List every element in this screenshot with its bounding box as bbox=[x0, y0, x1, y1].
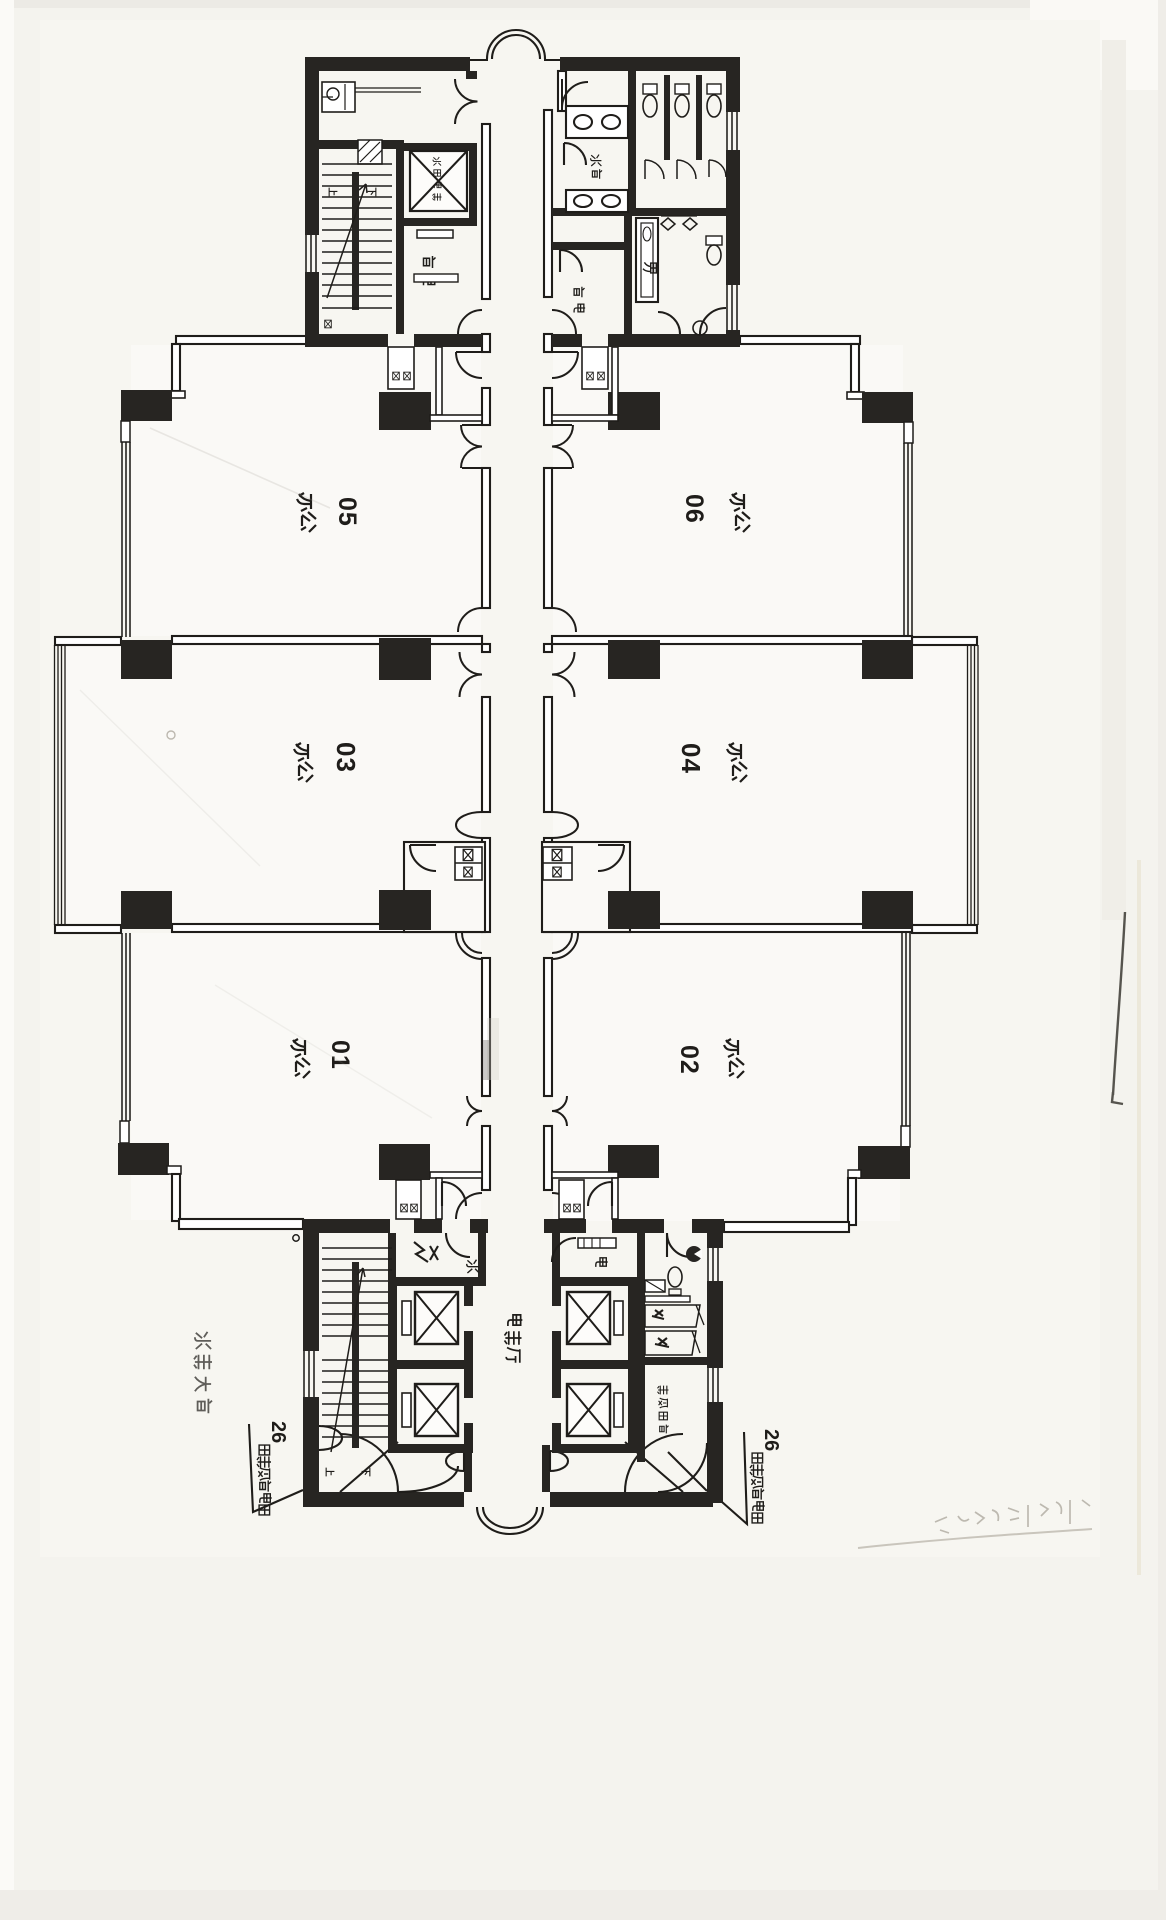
svg-text:26: 26 bbox=[267, 1421, 289, 1443]
svg-text:02: 02 bbox=[675, 1045, 703, 1075]
svg-text:04: 04 bbox=[676, 743, 706, 774]
svg-text:05: 05 bbox=[333, 497, 361, 527]
svg-text:26: 26 bbox=[760, 1429, 782, 1451]
svg-text:03: 03 bbox=[331, 742, 361, 773]
svg-text:06: 06 bbox=[680, 494, 708, 524]
